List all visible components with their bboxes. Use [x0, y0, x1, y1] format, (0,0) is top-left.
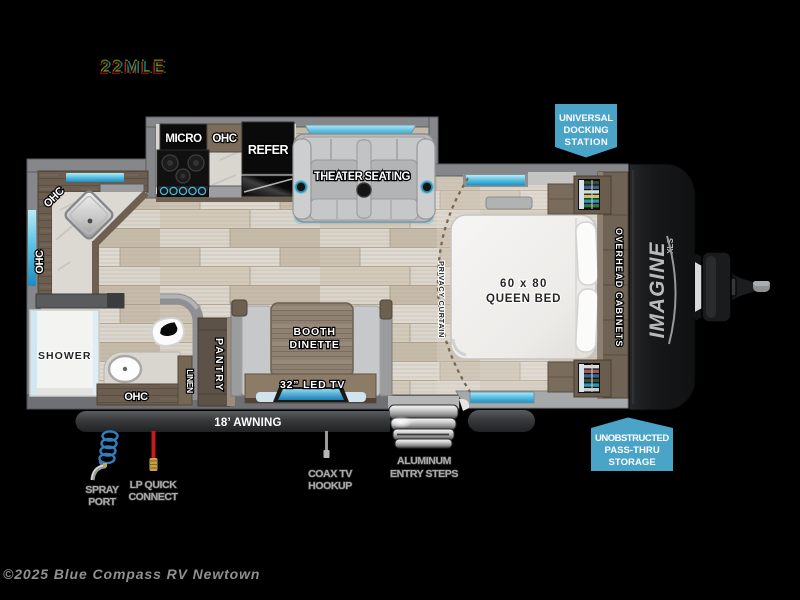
svg-text:STORAGE: STORAGE [609, 457, 656, 468]
svg-text:UNIVERSAL: UNIVERSAL [559, 113, 613, 124]
svg-text:QUEEN BED: QUEEN BED [486, 293, 560, 305]
svg-text:OHC: OHC [124, 391, 148, 403]
svg-text:HOOKUP: HOOKUP [308, 480, 352, 492]
svg-text:PORT: PORT [88, 496, 117, 508]
svg-text:OHC: OHC [34, 250, 46, 274]
svg-text:UNOBSTRUCTED: UNOBSTRUCTED [595, 433, 669, 444]
svg-text:32” LED TV: 32” LED TV [280, 379, 344, 391]
svg-text:60 x 80: 60 x 80 [500, 278, 546, 290]
svg-text:ENTRY STEPS: ENTRY STEPS [390, 468, 458, 480]
svg-text:MICRO: MICRO [165, 133, 202, 145]
svg-text:22MLE: 22MLE [101, 57, 167, 77]
svg-text:PASS-THRU: PASS-THRU [605, 445, 660, 456]
svg-text:SHOWER: SHOWER [38, 350, 91, 362]
svg-text:ALUMINUM: ALUMINUM [397, 455, 452, 467]
svg-text:CONNECT: CONNECT [128, 491, 178, 503]
svg-text:LP QUICK: LP QUICK [130, 479, 178, 491]
svg-text:IMAGINE: IMAGINE [646, 242, 669, 339]
svg-text:DOCKING: DOCKING [564, 125, 609, 136]
svg-text:COAX TV: COAX TV [308, 468, 352, 480]
svg-text:18’ AWNING: 18’ AWNING [214, 417, 281, 429]
svg-text:OHC: OHC [212, 133, 236, 145]
svg-text:REFER: REFER [248, 143, 289, 157]
svg-text:STATION: STATION [565, 137, 608, 148]
svg-text:DINETTE: DINETTE [290, 339, 339, 351]
svg-text:©2025 Blue Compass RV Newtown: ©2025 Blue Compass RV Newtown [3, 566, 260, 582]
svg-text:SPRAY: SPRAY [85, 484, 119, 496]
svg-text:LINEN: LINEN [185, 369, 195, 393]
svg-text:THEATER SEATING: THEATER SEATING [314, 171, 410, 183]
svg-text:BOOTH: BOOTH [294, 326, 335, 338]
svg-text:PRIVACY CURTAIN: PRIVACY CURTAIN [437, 261, 446, 337]
